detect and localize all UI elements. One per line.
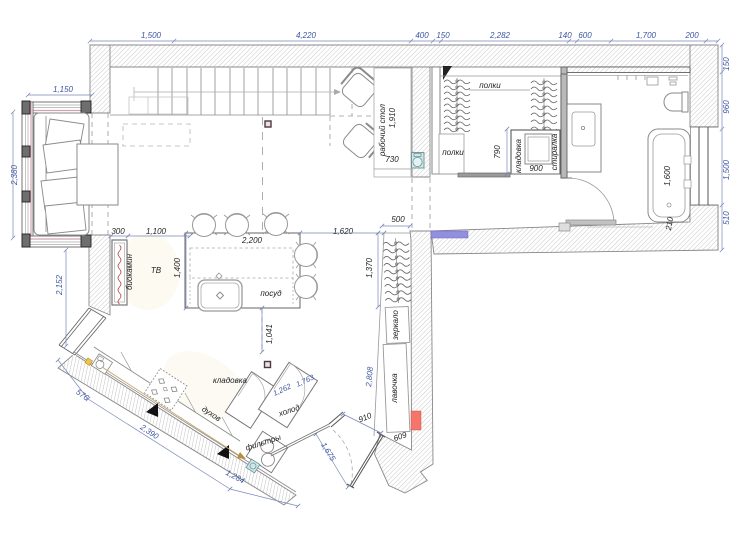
svg-text:1,370: 1,370 [365,257,374,278]
svg-text:2,200: 2,200 [241,236,263,245]
svg-text:790: 790 [493,145,502,159]
svg-text:1,910: 1,910 [388,107,397,128]
svg-text:посуд: посуд [260,289,282,298]
svg-text:150: 150 [722,57,731,71]
svg-text:2,808: 2,808 [364,366,375,388]
svg-text:900: 900 [529,164,543,173]
svg-text:200: 200 [684,31,699,40]
svg-text:2,152: 2,152 [55,274,64,296]
svg-text:кладовка: кладовка [213,376,248,385]
svg-text:стиралка: стиралка [550,133,559,170]
svg-text:зеркало: зеркало [391,310,400,341]
svg-text:1,150: 1,150 [53,85,74,94]
svg-text:1,500: 1,500 [141,31,162,40]
svg-text:2,282: 2,282 [489,31,511,40]
svg-text:4,220: 4,220 [296,31,317,40]
svg-text:2,380: 2,380 [10,164,19,186]
svg-text:1,400: 1,400 [173,257,182,278]
svg-text:лавочка: лавочка [390,373,399,404]
svg-text:150: 150 [436,31,450,40]
svg-text:ТВ: ТВ [151,266,162,275]
svg-text:полки: полки [479,81,501,90]
svg-text:кладовка: кладовка [514,138,523,173]
svg-text:1,500: 1,500 [722,159,731,180]
svg-text:400: 400 [415,31,429,40]
svg-text:1,041: 1,041 [265,324,274,344]
svg-text:600: 600 [578,31,592,40]
svg-text:500: 500 [391,215,405,224]
svg-text:полки: полки [442,148,464,157]
svg-text:1,620: 1,620 [333,227,354,236]
svg-text:биокамин: биокамин [125,253,134,290]
svg-text:510: 510 [722,211,731,225]
svg-text:140: 140 [558,31,572,40]
svg-text:300: 300 [111,227,125,236]
svg-text:960: 960 [722,100,731,114]
svg-text:730: 730 [385,155,399,164]
svg-text:1,100: 1,100 [146,227,167,236]
svg-text:1,600: 1,600 [663,165,672,186]
svg-text:1,700: 1,700 [636,31,657,40]
svg-text:рабочий стол: рабочий стол [378,103,387,157]
